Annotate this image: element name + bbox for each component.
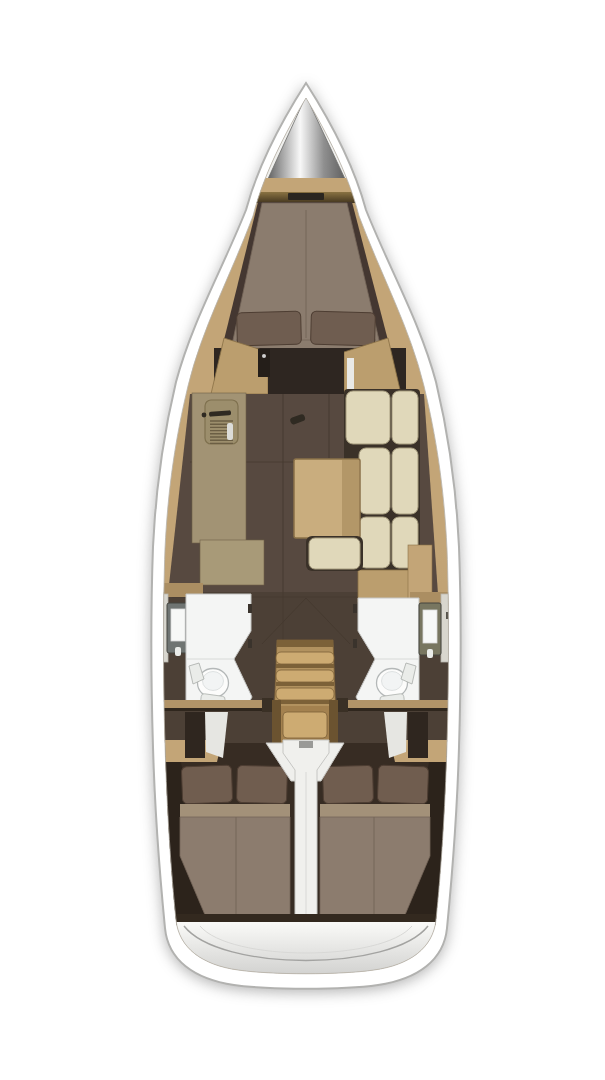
stbd-bed-head-band bbox=[320, 804, 430, 817]
stbd-toilet-bowl bbox=[382, 672, 403, 691]
rail-stbd bbox=[337, 700, 456, 708]
vberth-door-opening bbox=[268, 352, 344, 394]
settee-back-mid bbox=[392, 448, 418, 514]
stairs-step-2 bbox=[276, 670, 334, 682]
stbd-head-mirror bbox=[423, 610, 437, 643]
galley-faucet-knob bbox=[202, 413, 207, 418]
stairs-step-1 bbox=[276, 652, 334, 664]
port-head-hinge-bottom bbox=[248, 639, 252, 648]
stbd-bed-pillow-1 bbox=[323, 765, 374, 803]
settee-seat-top bbox=[346, 391, 390, 444]
mast-post bbox=[258, 349, 270, 377]
stairs-step-3 bbox=[276, 688, 334, 700]
stairs-step-2-shadow bbox=[276, 682, 334, 686]
boat-hull-group bbox=[140, 80, 470, 1010]
floor-plan-canvas bbox=[0, 0, 605, 1080]
salon-bench-cushion bbox=[309, 538, 360, 569]
vberth-pillow-right bbox=[311, 311, 376, 346]
settee-back-top bbox=[392, 391, 418, 444]
bow-band-slot bbox=[288, 193, 324, 200]
port-head-vanity-knob bbox=[175, 647, 181, 656]
floor-plan-svg bbox=[0, 0, 605, 1080]
vberth-door-white bbox=[347, 358, 354, 392]
stairs-step-1-shadow bbox=[276, 664, 334, 668]
port-head-hinge-top bbox=[248, 604, 252, 613]
mast-post-cap bbox=[262, 354, 266, 358]
port-bed-pillow-2 bbox=[237, 765, 288, 803]
port-bed-pillow-1 bbox=[181, 765, 232, 804]
stairs-bottom-step bbox=[283, 712, 327, 738]
interior-group bbox=[140, 80, 470, 1010]
port-bed-head-band bbox=[180, 804, 290, 817]
aft-locker-port bbox=[185, 712, 205, 758]
vberth-pillow-left bbox=[237, 311, 302, 346]
rail-port-shadow bbox=[153, 708, 273, 711]
stbd-head-vanity-knob bbox=[427, 649, 433, 658]
settee-seat-mid bbox=[359, 448, 390, 514]
settee-seat-bottom bbox=[359, 517, 390, 568]
stairs-step-3-shadow bbox=[276, 700, 334, 704]
galley-knob-column bbox=[227, 423, 233, 440]
port-toilet-bowl bbox=[203, 672, 224, 691]
stbd-head-hinge-top bbox=[353, 604, 357, 613]
rail-stbd-shadow bbox=[337, 708, 456, 711]
settee-aft-cabinet bbox=[358, 570, 412, 602]
rail-stbd-bracket bbox=[337, 698, 348, 712]
aft-locker-stbd bbox=[408, 712, 428, 758]
port-head-mirror bbox=[171, 609, 185, 641]
stbd-bed-pillow-2 bbox=[377, 765, 428, 804]
rail-port bbox=[153, 700, 273, 708]
stairs-rail-left bbox=[272, 700, 281, 743]
rail-port-bracket bbox=[262, 698, 273, 712]
stairs-rail-right bbox=[329, 700, 338, 743]
engine-divider-mark bbox=[299, 741, 313, 748]
stairs-top-lip bbox=[277, 640, 333, 647]
stbd-head-hinge-bottom bbox=[353, 639, 357, 648]
salon-table-leaf bbox=[342, 460, 359, 537]
galley-lower-block bbox=[200, 540, 264, 585]
